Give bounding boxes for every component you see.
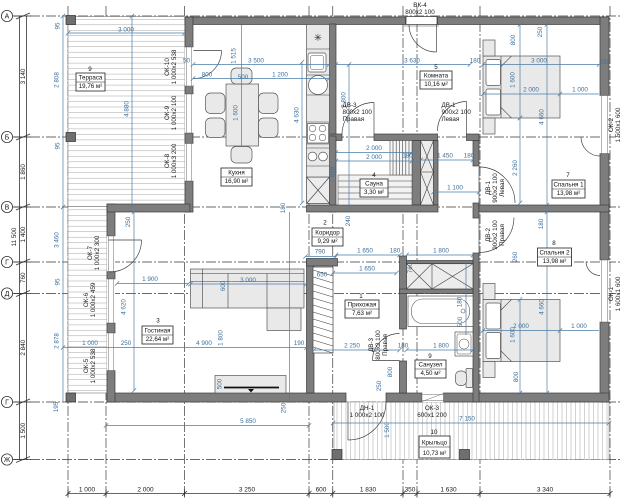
svg-text:1 600: 1 600 bbox=[510, 327, 517, 343]
svg-text:1 800: 1 800 bbox=[433, 248, 449, 255]
svg-text:ВК-4: ВК-4 bbox=[413, 2, 427, 9]
svg-text:1 800: 1 800 bbox=[218, 330, 225, 346]
svg-text:95: 95 bbox=[55, 278, 62, 286]
svg-text:1 000: 1 000 bbox=[79, 487, 96, 494]
svg-text:Крыльцо: Крыльцо bbox=[422, 440, 448, 447]
svg-text:1 600x1 600: 1 600x1 600 bbox=[615, 276, 622, 311]
svg-text:Левая: Левая bbox=[499, 179, 506, 197]
svg-text:760: 760 bbox=[20, 272, 27, 283]
svg-text:3 140: 3 140 bbox=[20, 68, 27, 84]
svg-text:Правая: Правая bbox=[499, 224, 506, 246]
svg-text:Правая: Правая bbox=[343, 116, 365, 123]
svg-text:2 840: 2 840 bbox=[20, 339, 27, 355]
svg-text:1 500: 1 500 bbox=[20, 422, 27, 438]
svg-text:ОК-2: ОК-2 bbox=[608, 117, 615, 132]
svg-text:А: А bbox=[5, 13, 10, 20]
svg-text:1 515: 1 515 bbox=[231, 48, 238, 64]
svg-text:4 620: 4 620 bbox=[121, 299, 128, 315]
svg-text:1 650: 1 650 bbox=[359, 266, 375, 273]
svg-text:Спальня 1: Спальня 1 bbox=[553, 182, 584, 189]
svg-text:Санузел: Санузел bbox=[418, 362, 442, 369]
svg-text:180: 180 bbox=[464, 153, 475, 160]
svg-text:Г: Г bbox=[5, 399, 9, 406]
svg-text:1 860: 1 860 bbox=[20, 164, 27, 180]
svg-text:4 900: 4 900 bbox=[196, 340, 212, 347]
svg-text:260: 260 bbox=[512, 251, 519, 262]
svg-text:190: 190 bbox=[294, 340, 305, 347]
svg-text:180: 180 bbox=[470, 58, 481, 65]
svg-text:8: 8 bbox=[552, 240, 556, 247]
svg-text:2: 2 bbox=[323, 220, 327, 227]
svg-text:250: 250 bbox=[376, 380, 383, 391]
svg-text:250: 250 bbox=[281, 402, 288, 413]
svg-text:5 850: 5 850 bbox=[240, 418, 256, 425]
svg-text:Г: Г bbox=[5, 259, 9, 266]
svg-text:1 000x3 200: 1 000x3 200 bbox=[171, 143, 178, 178]
svg-text:ОК-1: ОК-1 bbox=[608, 286, 615, 301]
svg-text:600: 600 bbox=[220, 280, 227, 291]
svg-text:600x1 200: 600x1 200 bbox=[417, 412, 447, 419]
svg-text:ОК-5: ОК-5 bbox=[83, 358, 90, 373]
svg-text:180: 180 bbox=[280, 202, 287, 213]
svg-text:900x2 100: 900x2 100 bbox=[442, 109, 472, 116]
svg-text:900x2 100: 900x2 100 bbox=[492, 173, 499, 203]
svg-text:4 880: 4 880 bbox=[124, 101, 131, 117]
svg-text:240: 240 bbox=[345, 215, 352, 226]
svg-text:1 830: 1 830 bbox=[360, 487, 377, 494]
svg-text:95: 95 bbox=[55, 22, 62, 30]
svg-text:ДВ-3: ДВ-3 bbox=[368, 337, 375, 352]
svg-text:180: 180 bbox=[390, 248, 401, 255]
svg-text:800x2 100: 800x2 100 bbox=[343, 109, 373, 116]
svg-text:9: 9 bbox=[428, 353, 432, 360]
svg-text:4: 4 bbox=[372, 172, 376, 179]
svg-text:800: 800 bbox=[202, 72, 213, 79]
svg-text:Комната: Комната bbox=[424, 73, 449, 80]
svg-text:180: 180 bbox=[398, 343, 409, 350]
svg-text:1 630: 1 630 bbox=[440, 487, 457, 494]
svg-text:1: 1 bbox=[359, 293, 363, 300]
svg-text:900x2 100: 900x2 100 bbox=[492, 220, 499, 250]
svg-text:3 000: 3 000 bbox=[531, 57, 547, 64]
svg-text:3 000: 3 000 bbox=[240, 277, 256, 284]
svg-text:4 630: 4 630 bbox=[294, 107, 301, 123]
svg-text:4,50 м²: 4,50 м² bbox=[420, 370, 440, 377]
svg-text:650: 650 bbox=[330, 166, 337, 177]
svg-text:1 000x2 100: 1 000x2 100 bbox=[171, 95, 178, 130]
svg-text:800x2 100: 800x2 100 bbox=[405, 9, 435, 16]
svg-text:800: 800 bbox=[510, 34, 517, 45]
svg-text:4 660: 4 660 bbox=[539, 109, 546, 125]
svg-text:7 150: 7 150 bbox=[459, 416, 475, 423]
svg-text:1 000: 1 000 bbox=[82, 340, 98, 347]
svg-text:500: 500 bbox=[217, 378, 224, 389]
svg-text:ОК-6: ОК-6 bbox=[83, 292, 90, 307]
svg-text:19,76 м²: 19,76 м² bbox=[79, 83, 103, 90]
svg-text:✳: ✳ bbox=[314, 33, 322, 44]
svg-text:2 250: 2 250 bbox=[344, 343, 360, 350]
svg-text:3 340: 3 340 bbox=[537, 487, 554, 494]
svg-text:7: 7 bbox=[566, 172, 570, 179]
svg-text:500: 500 bbox=[238, 74, 249, 81]
svg-text:9: 9 bbox=[88, 66, 92, 73]
svg-text:10: 10 bbox=[431, 429, 438, 436]
svg-text:3,30 м²: 3,30 м² bbox=[364, 189, 384, 196]
svg-text:1 200: 1 200 bbox=[272, 72, 288, 79]
svg-text:ОК-8: ОК-8 bbox=[164, 153, 171, 168]
svg-text:1 000x2 459: 1 000x2 459 bbox=[90, 282, 97, 317]
svg-text:2 000: 2 000 bbox=[523, 87, 539, 94]
svg-text:Б: Б bbox=[5, 134, 10, 141]
svg-text:250: 250 bbox=[600, 59, 611, 66]
svg-text:ОК-9: ОК-9 bbox=[164, 105, 171, 120]
svg-text:1 400: 1 400 bbox=[20, 226, 27, 242]
svg-text:2 878: 2 878 bbox=[54, 333, 61, 349]
svg-text:2 000: 2 000 bbox=[137, 487, 154, 494]
svg-text:1 500: 1 500 bbox=[384, 422, 391, 438]
svg-text:1 000: 1 000 bbox=[572, 87, 588, 94]
svg-text:1 500x1 600: 1 500x1 600 bbox=[615, 107, 622, 142]
svg-text:10,16 м²: 10,16 м² bbox=[424, 81, 448, 88]
svg-text:250: 250 bbox=[537, 26, 544, 37]
svg-text:650: 650 bbox=[317, 272, 328, 279]
svg-text:22,64 м²: 22,64 м² bbox=[146, 336, 170, 343]
svg-text:Сауна: Сауна bbox=[365, 181, 383, 188]
svg-text:1 000x2 100: 1 000x2 100 bbox=[350, 412, 385, 419]
svg-text:ДВ-1: ДВ-1 bbox=[485, 180, 492, 195]
svg-text:Д: Д bbox=[5, 291, 10, 298]
svg-text:2 000: 2 000 bbox=[366, 154, 382, 161]
svg-text:180: 180 bbox=[402, 153, 413, 160]
svg-text:Правая: Правая bbox=[382, 334, 389, 356]
svg-text:800: 800 bbox=[513, 371, 520, 382]
svg-text:800: 800 bbox=[387, 366, 394, 377]
svg-text:ОК-7: ОК-7 bbox=[87, 245, 94, 260]
svg-text:ДВ-3: ДВ-3 bbox=[343, 102, 358, 109]
svg-text:ОК-3: ОК-3 bbox=[425, 405, 440, 412]
svg-text:13,98 м²: 13,98 м² bbox=[557, 190, 581, 197]
svg-text:Терраса: Терраса bbox=[79, 75, 103, 82]
svg-text:ДВ-2: ДВ-2 bbox=[485, 227, 492, 242]
svg-text:ОК-10: ОК-10 bbox=[164, 58, 171, 76]
svg-text:3 250: 3 250 bbox=[239, 487, 256, 494]
svg-text:1 900: 1 900 bbox=[142, 276, 158, 283]
svg-text:10,73 м²: 10,73 м² bbox=[423, 450, 447, 457]
svg-text:5: 5 bbox=[434, 64, 438, 71]
svg-text:2 260: 2 260 bbox=[512, 160, 519, 176]
svg-text:3 500: 3 500 bbox=[248, 58, 264, 65]
svg-text:50: 50 bbox=[183, 58, 191, 65]
svg-text:16,90 м²: 16,90 м² bbox=[225, 178, 249, 185]
svg-text:800x2 100: 800x2 100 bbox=[375, 330, 382, 360]
svg-text:1 100: 1 100 bbox=[447, 185, 463, 192]
svg-text:3 460: 3 460 bbox=[54, 232, 61, 248]
svg-text:1 800: 1 800 bbox=[433, 343, 449, 350]
svg-text:1 600: 1 600 bbox=[233, 105, 240, 121]
svg-text:11 500: 11 500 bbox=[11, 227, 18, 246]
svg-text:760: 760 bbox=[407, 262, 414, 273]
svg-text:Кухня: Кухня bbox=[228, 170, 245, 177]
svg-text:9,29 м²: 9,29 м² bbox=[317, 238, 337, 245]
svg-text:3 630: 3 630 bbox=[404, 58, 420, 65]
svg-text:7,63 м²: 7,63 м² bbox=[352, 310, 372, 317]
svg-text:Коридор: Коридор bbox=[315, 230, 340, 237]
svg-text:1 600: 1 600 bbox=[510, 72, 517, 88]
svg-text:Левая: Левая bbox=[442, 116, 460, 123]
svg-text:Ж: Ж bbox=[4, 457, 11, 464]
svg-text:Прихожая: Прихожая bbox=[348, 302, 377, 309]
svg-text:1 650: 1 650 bbox=[357, 248, 373, 255]
svg-text:1 000: 1 000 bbox=[571, 323, 587, 330]
svg-text:1 450: 1 450 bbox=[437, 153, 453, 160]
svg-text:1 000x2 538: 1 000x2 538 bbox=[171, 49, 178, 84]
svg-text:В: В bbox=[5, 204, 10, 211]
svg-text:ДН-1: ДН-1 bbox=[360, 405, 375, 412]
svg-text:195: 195 bbox=[53, 401, 60, 412]
svg-text:Гостиная: Гостиная bbox=[145, 328, 171, 335]
svg-text:13,98 м²: 13,98 м² bbox=[543, 258, 567, 265]
svg-text:180: 180 bbox=[457, 296, 464, 307]
svg-text:350: 350 bbox=[405, 487, 416, 494]
svg-text:95: 95 bbox=[55, 142, 62, 150]
svg-text:Спальня 2: Спальня 2 bbox=[539, 250, 570, 257]
svg-text:1 000x2 538: 1 000x2 538 bbox=[90, 348, 97, 383]
svg-text:500: 500 bbox=[457, 316, 464, 327]
svg-text:4 660: 4 660 bbox=[539, 299, 546, 315]
svg-text:790: 790 bbox=[315, 249, 326, 256]
svg-text:250: 250 bbox=[125, 216, 132, 227]
svg-text:250: 250 bbox=[121, 340, 132, 347]
svg-text:ДВ-1: ДВ-1 bbox=[442, 102, 457, 109]
svg-text:600: 600 bbox=[316, 487, 327, 494]
svg-text:2 808: 2 808 bbox=[54, 72, 61, 88]
svg-text:180: 180 bbox=[538, 218, 545, 229]
svg-text:1 000x2 300: 1 000x2 300 bbox=[94, 235, 101, 270]
svg-text:3: 3 bbox=[156, 318, 160, 325]
svg-text:2 000: 2 000 bbox=[366, 145, 382, 152]
